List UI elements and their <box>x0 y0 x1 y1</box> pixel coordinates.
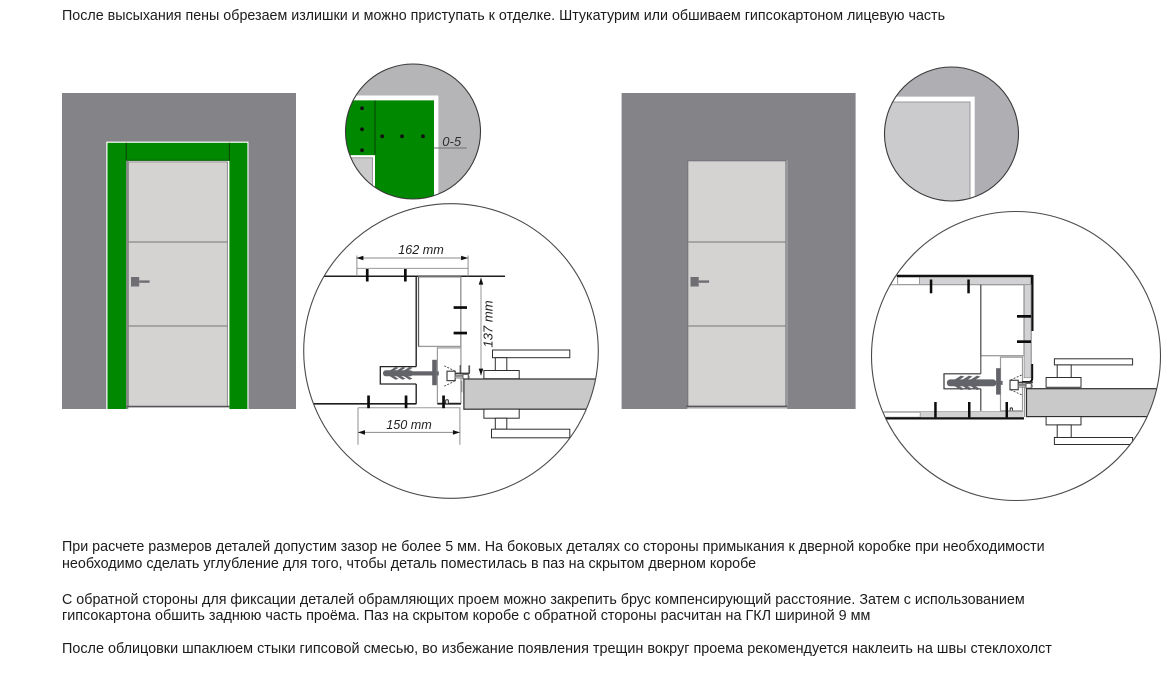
svg-text:162 mm: 162 mm <box>398 243 444 257</box>
svg-text:0-5: 0-5 <box>442 134 462 149</box>
svg-text:150 mm: 150 mm <box>386 418 432 432</box>
svg-text:137 mm: 137 mm <box>481 300 496 347</box>
